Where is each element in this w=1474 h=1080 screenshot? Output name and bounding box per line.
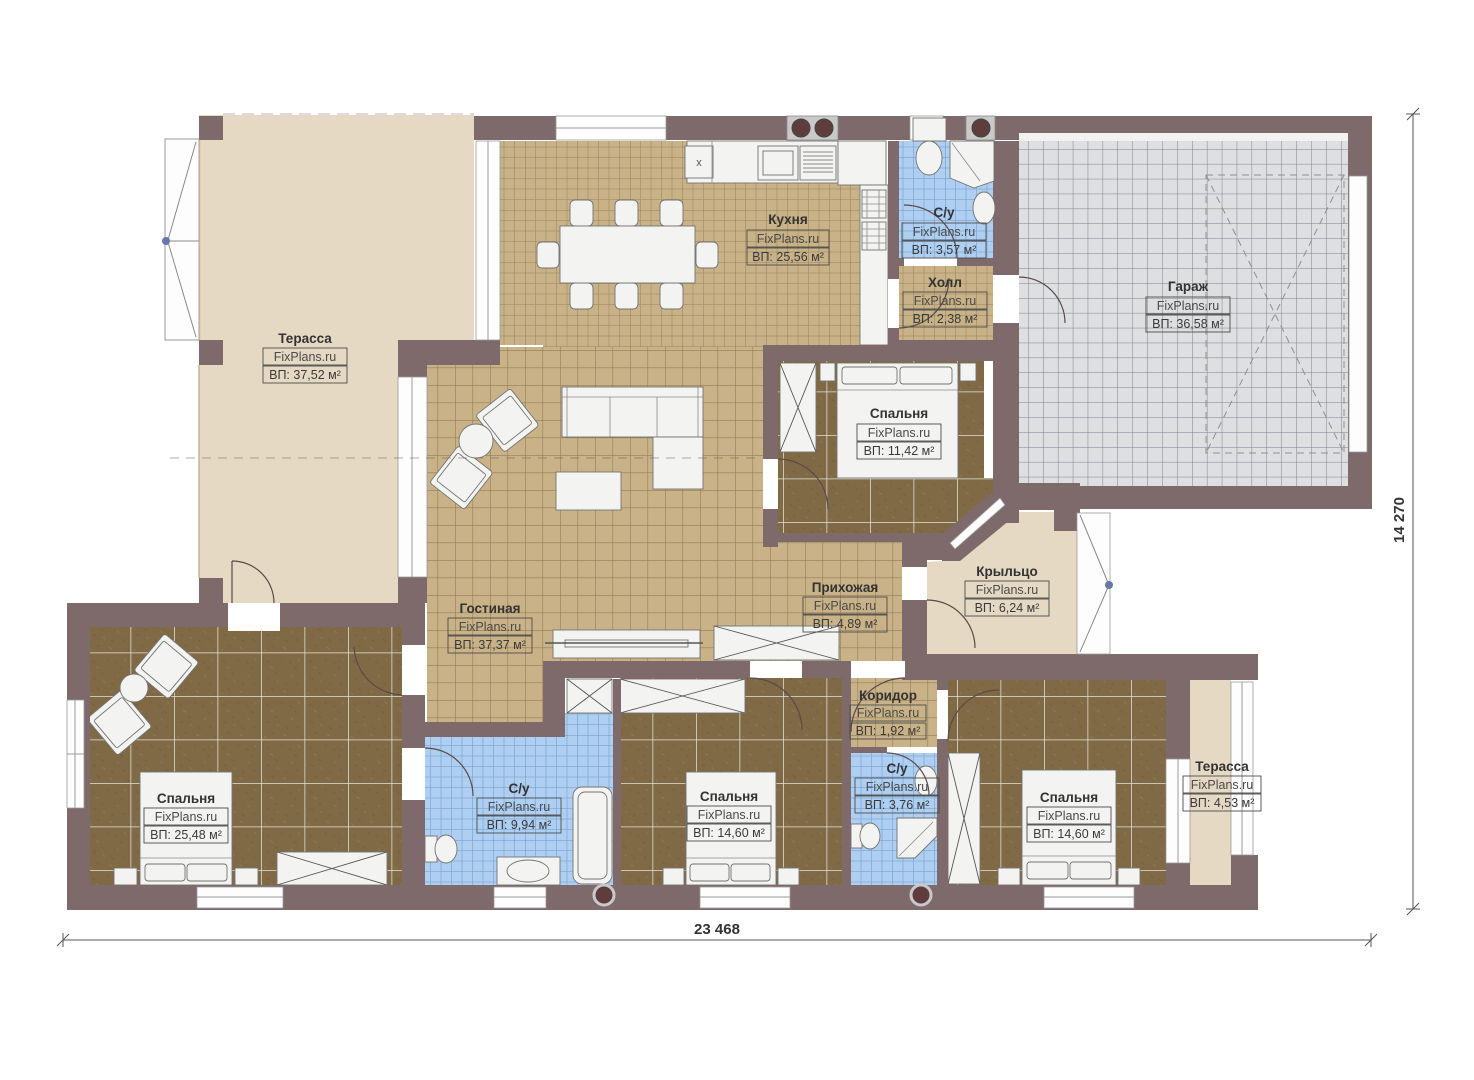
svg-text:ВП: 36,58 м²: ВП: 36,58 м² — [1152, 317, 1224, 331]
svg-text:ВП: 1,92 м²: ВП: 1,92 м² — [856, 724, 921, 738]
svg-text:ВП: 3,57 м²: ВП: 3,57 м² — [912, 243, 977, 257]
svg-text:FixPlans.ru: FixPlans.ru — [274, 350, 337, 364]
svg-text:ВП: 9,94 м²: ВП: 9,94 м² — [487, 818, 552, 832]
svg-text:ВП: 37,37 м²: ВП: 37,37 м² — [454, 638, 526, 652]
svg-text:FixPlans.ru: FixPlans.ru — [814, 599, 877, 613]
svg-text:FixPlans.ru: FixPlans.ru — [488, 800, 551, 814]
svg-text:Спальня: Спальня — [157, 791, 215, 806]
svg-text:FixPlans.ru: FixPlans.ru — [1157, 299, 1220, 313]
svg-text:Коридор: Коридор — [859, 688, 917, 703]
svg-text:ВП: 2,38 м²: ВП: 2,38 м² — [913, 312, 978, 326]
svg-text:23 468: 23 468 — [694, 921, 740, 938]
svg-text:Крыльцо: Крыльцо — [976, 564, 1037, 579]
svg-text:FixPlans.ru: FixPlans.ru — [757, 232, 820, 246]
svg-text:ВП: 6,24 м²: ВП: 6,24 м² — [975, 601, 1040, 615]
svg-text:Прихожая: Прихожая — [812, 580, 879, 595]
svg-text:Гостиная: Гостиная — [459, 601, 520, 616]
svg-text:Терасса: Терасса — [1195, 759, 1249, 774]
svg-text:ВП: 37,52 м²: ВП: 37,52 м² — [269, 368, 341, 382]
svg-text:FixPlans.ru: FixPlans.ru — [976, 583, 1039, 597]
svg-text:ВП: 11,42 м²: ВП: 11,42 м² — [864, 444, 935, 458]
svg-text:14 270: 14 270 — [1391, 497, 1408, 543]
svg-text:ВП: 4,53 м²: ВП: 4,53 м² — [1190, 796, 1255, 810]
svg-text:FixPlans.ru: FixPlans.ru — [459, 620, 522, 634]
svg-text:ВП: 14,60 м²: ВП: 14,60 м² — [693, 826, 765, 840]
svg-text:ВП: 4,89 м²: ВП: 4,89 м² — [813, 617, 878, 631]
svg-text:ВП: 25,48 м²: ВП: 25,48 м² — [150, 828, 222, 842]
svg-text:FixPlans.ru: FixPlans.ru — [857, 706, 920, 720]
svg-text:x: x — [696, 157, 702, 169]
svg-text:Спальня: Спальня — [700, 789, 758, 804]
svg-text:ВП: 3,76 м²: ВП: 3,76 м² — [865, 798, 930, 812]
svg-text:Терасса: Терасса — [278, 331, 332, 346]
svg-text:Спальня: Спальня — [1040, 790, 1098, 805]
svg-text:ВП: 25,56 м²: ВП: 25,56 м² — [752, 250, 824, 264]
svg-text:С/у: С/у — [886, 761, 908, 776]
svg-text:С/у: С/у — [508, 781, 530, 796]
svg-text:FixPlans.ru: FixPlans.ru — [1038, 809, 1101, 823]
svg-text:Холл: Холл — [928, 275, 962, 290]
svg-text:FixPlans.ru: FixPlans.ru — [155, 810, 218, 824]
svg-text:FixPlans.ru: FixPlans.ru — [1191, 778, 1254, 792]
svg-text:С/у: С/у — [933, 205, 955, 220]
svg-text:FixPlans.ru: FixPlans.ru — [913, 225, 976, 239]
svg-text:Спальня: Спальня — [870, 406, 928, 421]
svg-text:ВП: 14,60 м²: ВП: 14,60 м² — [1033, 827, 1105, 841]
svg-text:FixPlans.ru: FixPlans.ru — [914, 294, 977, 308]
svg-text:FixPlans.ru: FixPlans.ru — [698, 808, 761, 822]
svg-text:Кухня: Кухня — [768, 212, 807, 227]
svg-text:FixPlans.ru: FixPlans.ru — [868, 426, 931, 440]
svg-text:Гараж: Гараж — [1168, 279, 1209, 294]
svg-text:FixPlans.ru: FixPlans.ru — [866, 780, 929, 794]
